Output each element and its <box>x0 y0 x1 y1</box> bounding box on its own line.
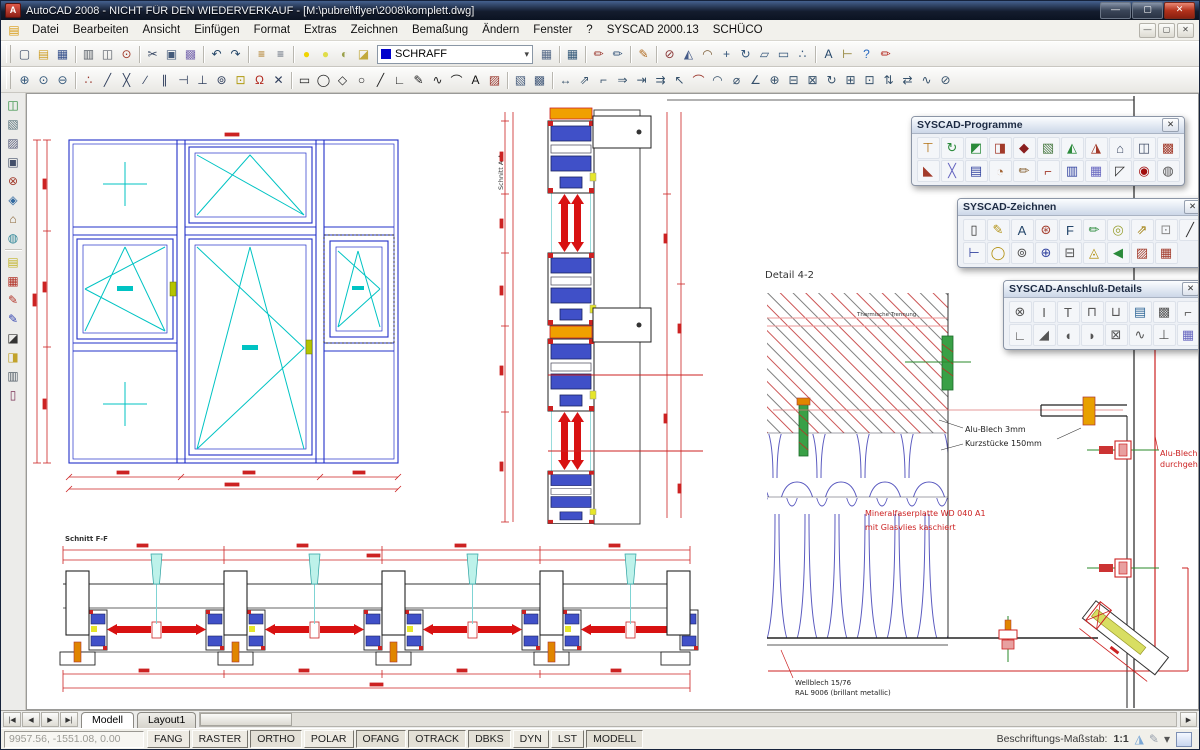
properties-tools: ▦▦✏✏✎⊘◭◠+↻▱▭∴A⊢?✏ <box>537 45 895 64</box>
menu--ndern[interactable]: Ändern <box>475 23 526 37</box>
alu-kurz-label-2: Kurzstücke 150mm <box>965 439 1042 448</box>
acad-file-icon: ▤ <box>6 23 22 38</box>
id-yellow-icon[interactable]: ◨ <box>4 347 23 366</box>
toolbar-grip[interactable] <box>6 71 11 89</box>
door-tool-icon[interactable]: ▯ <box>4 385 23 404</box>
schueco-emblem-icon[interactable]: ◆ <box>1013 137 1036 159</box>
palette-title: SYSCAD-Anschluß-Details <box>1009 283 1142 295</box>
block-reference-icon[interactable]: ▣ <box>4 152 23 171</box>
snap-magnet-icon[interactable]: Ω <box>250 71 269 90</box>
corner-profile-icon[interactable]: ⌐ <box>1177 301 1200 323</box>
views-tool-icon[interactable]: ◈ <box>4 190 23 209</box>
snap-midpoint-icon[interactable]: ∕ <box>136 71 155 90</box>
dot-box-icon[interactable]: ⊡ <box>1155 219 1178 241</box>
edit-pencil-icon[interactable]: ✎ <box>634 45 653 64</box>
target-red-icon[interactable]: ◉ <box>1133 160 1156 182</box>
snap-intersection-icon[interactable]: ╳ <box>117 71 136 90</box>
toggle-dbks[interactable]: DBKS <box>468 730 511 748</box>
toolbar-separator <box>552 72 553 89</box>
hatch-box-icon[interactable]: ▩ <box>1153 301 1176 323</box>
toolbar-separator <box>559 46 560 63</box>
menu-items: DateiBearbeitenAnsichtEinfügenFormatExtr… <box>25 23 770 37</box>
toggle-ofang[interactable]: OFANG <box>356 730 407 748</box>
window-title: AutoCAD 2008 - NICHT FÜR DEN WIEDERVERKA… <box>26 5 474 17</box>
scrollbar-thumb[interactable] <box>200 713 292 726</box>
new-file-icon[interactable]: ▢ <box>15 45 34 64</box>
menu-einf-gen[interactable]: Einfügen <box>187 23 246 37</box>
mineral-label-1: Mineralfaserplatte WD 040 A1 <box>865 509 986 518</box>
dim-leader-icon[interactable]: ↖ <box>670 71 689 90</box>
dim-text-edit-icon[interactable]: ⊠ <box>803 71 822 90</box>
standard-toolbar: ▢▤▦▥◫⊙✂▣▩↶↷≡≡●●◐◪ SCHRAFF ▾ ▦▦✏✏✎⊘◭◠+↻▱▭… <box>1 41 1199 67</box>
palette-title-bar[interactable]: SYSCAD-Zeichnen ✕ <box>958 199 1199 216</box>
thermal-label: Thermische Trennung <box>856 312 916 318</box>
menu--[interactable]: ? <box>579 23 599 37</box>
status-toggles: FANGRASTERORTHOPOLAROFANGOTRACKDBKSDYNLS… <box>147 730 643 748</box>
syscad-logo-icon[interactable]: ◫ <box>4 95 23 114</box>
wipeout-icon[interactable]: ▧ <box>511 71 530 90</box>
z-profile-icon[interactable]: ∟ <box>1009 324 1032 346</box>
mineral-label-2: mit Glasvlies kaschiert <box>865 523 956 532</box>
snap-perpendicular-icon[interactable]: ⊥ <box>193 71 212 90</box>
f-pencil-icon[interactable]: F <box>1059 219 1082 241</box>
layer-plot-icon[interactable]: ◪ <box>354 45 373 64</box>
house-plan-icon[interactable]: ⌂ <box>1109 137 1132 159</box>
alu-durch-label-2: durchgehend <box>1160 460 1199 469</box>
draw-polygon-icon[interactable]: ◇ <box>333 71 352 90</box>
draw-circle-icon[interactable]: ◯ <box>314 71 333 90</box>
draw-ellipse-icon[interactable]: ○ <box>352 71 371 90</box>
bolt-symbol <box>1087 441 1159 459</box>
snap-node-icon[interactable]: ⊡ <box>231 71 250 90</box>
book-green-icon[interactable]: ◭ <box>1061 137 1084 159</box>
building-tool-icon[interactable]: ⌂ <box>4 209 23 228</box>
anchor-detail-icon[interactable]: ⊗ <box>1009 301 1032 323</box>
properties-table-icon[interactable]: ▦ <box>563 45 582 64</box>
dim-ordinate-icon[interactable]: ⌐ <box>594 71 613 90</box>
toolbar-separator <box>656 46 657 63</box>
snap-extension-icon[interactable]: ⊣ <box>174 71 193 90</box>
diagonal-bracket <box>1076 599 1169 682</box>
draw-spline-icon[interactable]: ∿ <box>428 71 447 90</box>
layer-dropdown[interactable]: SCHRAFF ▾ <box>377 45 533 64</box>
dim-chain-icon[interactable]: ⊢ <box>963 242 986 264</box>
snap-off-icon[interactable]: ✕ <box>269 71 288 90</box>
toggle-otrack[interactable]: OTRACK <box>408 730 466 748</box>
alu-kurz-label-1: Alu-Blech 3mm <box>965 425 1026 434</box>
draw-hatch-icon[interactable]: ▨ <box>485 71 504 90</box>
toolbar-separator <box>5 249 22 250</box>
syscad-side-toolbar: ◫▧▨▣⊗◈⌂◍▤▦✎✎◪◨▥▯ <box>1 93 26 710</box>
menu-datei[interactable]: Datei <box>25 23 66 37</box>
bolt-t-icon[interactable]: ⊥ <box>1153 324 1176 346</box>
layer-unlock-icon[interactable]: ◐ <box>335 45 354 64</box>
snap-to-icon[interactable]: ∴ <box>793 45 812 64</box>
annotation-scale-value[interactable]: 1:1 <box>1113 733 1128 745</box>
brush-tool-icon[interactable]: ✏ <box>1013 160 1036 182</box>
palette-icons-row: ◣╳▤◔✏⌐▥▦◸◉◍ <box>916 160 1180 182</box>
scale-menu-arrow-icon[interactable]: ▾ <box>1164 732 1170 746</box>
erase-icon[interactable]: ⊘ <box>660 45 679 64</box>
toggle-raster[interactable]: RASTER <box>192 730 249 748</box>
eye-bubble-icon[interactable]: ◎ <box>1107 219 1130 241</box>
draw-pencil-icon[interactable]: ✎ <box>409 71 428 90</box>
annotation-autoscale-icon[interactable]: ✎ <box>1149 732 1159 746</box>
t-profile-icon[interactable]: T <box>1057 301 1080 323</box>
stretch-icon[interactable]: ▭ <box>774 45 793 64</box>
sheet-new-icon[interactable]: ▤ <box>4 252 23 271</box>
menu-fenster[interactable]: Fenster <box>526 23 579 37</box>
toolbar-separator <box>630 46 631 63</box>
table-red-icon[interactable]: ▦ <box>1155 242 1178 264</box>
www-panel-icon[interactable]: ▦ <box>1177 324 1200 346</box>
cd-tool-icon[interactable]: ◍ <box>1157 160 1180 182</box>
toolbar-separator <box>75 72 76 89</box>
i-beam-icon[interactable]: I <box>1033 301 1056 323</box>
flat-seal-icon[interactable]: ◢ <box>1033 324 1056 346</box>
snap-endpoint-icon[interactable]: ╱ <box>98 71 117 90</box>
truck-tool-icon[interactable]: ▥ <box>1061 160 1084 182</box>
toolbar-separator <box>815 46 816 63</box>
panel-blue-icon[interactable]: ▤ <box>1129 301 1152 323</box>
offset-icon[interactable]: ◠ <box>698 45 717 64</box>
palette-icons-row: ∟◢◖◗⊠∿⊥▦ <box>1008 324 1199 346</box>
alu-durch-label-1: Alu-Blech <box>1160 449 1197 458</box>
profile-blue-icon[interactable]: ◫ <box>1133 137 1156 159</box>
palette-icons-row: ⊗IT⊓⊔▤▩⌐ <box>1008 301 1199 323</box>
toggle-modell[interactable]: MODELL <box>586 730 643 748</box>
toolbar-separator <box>139 46 140 63</box>
close-icon[interactable]: ✕ <box>1182 282 1199 296</box>
toggle-fang[interactable]: FANG <box>147 730 190 748</box>
layer-thaw-icon[interactable]: ● <box>316 45 335 64</box>
x-box-icon[interactable]: ⊠ <box>1105 324 1128 346</box>
menu-bema-ung[interactable]: Bemaßung <box>405 23 475 37</box>
menu-sch-co[interactable]: SCHÜCO <box>706 23 770 37</box>
pipe-tool-icon[interactable]: ⌐ <box>1037 160 1060 182</box>
prev-tab-icon[interactable]: ◀ <box>22 712 40 727</box>
wellblech-label-1: Wellblech 15/76 <box>795 679 852 687</box>
grid-red-icon[interactable]: ▦ <box>4 271 23 290</box>
drawing-canvas[interactable]: Schnitt A-A <box>26 93 1199 710</box>
palette-title-bar[interactable]: SYSCAD-Programme ✕ <box>912 117 1184 134</box>
toolbar-separator <box>293 46 294 63</box>
dim-quick-icon[interactable]: ⇉ <box>651 71 670 90</box>
draw-arc-icon[interactable]: ⌒ <box>447 71 466 90</box>
flag-select-icon[interactable]: ◀ <box>1107 242 1130 264</box>
draw-polyline-icon[interactable]: ∟ <box>390 71 409 90</box>
oval-tool-icon[interactable]: ◯ <box>987 242 1010 264</box>
toolbar-separator <box>507 72 508 89</box>
wellblech-label-2: RAL 9006 (brillant metallic) <box>795 689 891 697</box>
palette-syscad-anschluss-details[interactable]: SYSCAD-Anschluß-Details ✕ ⊗IT⊓⊔▤▩⌐ ∟◢◖◗⊠… <box>1003 280 1199 350</box>
save-file-icon[interactable]: ▦ <box>53 45 72 64</box>
help-icon[interactable]: ? <box>857 45 876 64</box>
profile-green-icon[interactable]: ◩ <box>965 137 988 159</box>
percent-tool-icon[interactable]: ◔ <box>989 160 1012 182</box>
dim-update-icon[interactable]: ↻ <box>822 71 841 90</box>
user-cross-icon[interactable]: ╳ <box>941 160 964 182</box>
u-profile-icon[interactable]: ⊔ <box>1105 301 1128 323</box>
rings-tool-icon[interactable]: ⊚ <box>1011 242 1034 264</box>
image-frame-icon[interactable]: ▩ <box>530 71 549 90</box>
layer-previous-icon[interactable]: ≡ <box>252 45 271 64</box>
target-move-icon[interactable]: ⊕ <box>1035 242 1058 264</box>
palette-icons-row: ▯✎A⊛F✏◎⇗⊡╱ <box>962 219 1199 241</box>
list-blue-icon[interactable]: ▤ <box>965 160 988 182</box>
pen-red-icon[interactable]: ✎ <box>4 290 23 309</box>
window-controls: —▢✕ <box>1100 2 1195 19</box>
toolbar-separator <box>585 46 586 63</box>
palette-title: SYSCAD-Programme <box>917 119 1023 131</box>
layer-states-icon[interactable]: ▦ <box>537 45 556 64</box>
match-properties-icon[interactable]: ✏ <box>589 45 608 64</box>
erase-tool-icon[interactable]: ⊗ <box>4 171 23 190</box>
gasket-left-icon[interactable]: ◖ <box>1057 324 1080 346</box>
dim-radius-icon[interactable]: ◠ <box>708 71 727 90</box>
next-tab-icon[interactable]: ▶ <box>41 712 59 727</box>
draw-text-icon[interactable]: A <box>466 71 485 90</box>
snap-parallel-icon[interactable]: ∥ <box>155 71 174 90</box>
menu-format[interactable]: Format <box>247 23 297 37</box>
channel-profile-icon[interactable]: ⊓ <box>1081 301 1104 323</box>
palette-syscad-programme[interactable]: SYSCAD-Programme ✕ ⊤↻◩◨◆▧◭◮⌂◫▩ ◣╳▤◔✏⌐▥▦◸… <box>911 116 1185 186</box>
draw-rectangle-icon[interactable]: ▭ <box>295 71 314 90</box>
rotate-icon[interactable]: ↻ <box>736 45 755 64</box>
palette-icons-row: ⊢◯⊚⊕⊟◬◀▨▦ <box>962 242 1199 264</box>
layer-on-icon[interactable]: ● <box>297 45 316 64</box>
plot-preview-icon[interactable]: ◫ <box>98 45 117 64</box>
menu-extras[interactable]: Extras <box>297 23 344 37</box>
dim-diameter-icon[interactable]: ⌀ <box>727 71 746 90</box>
dim-continue-icon[interactable]: ⇥ <box>632 71 651 90</box>
cabinet-tool-icon[interactable]: ▦ <box>1085 160 1108 182</box>
toggle-ortho[interactable]: ORTHO <box>250 730 302 748</box>
close-icon[interactable]: ✕ <box>1162 118 1179 132</box>
chevron-down-icon: ▾ <box>524 49 529 60</box>
snap-refpoint-icon[interactable]: ∴ <box>79 71 98 90</box>
scale-icon[interactable]: ▱ <box>755 45 774 64</box>
menu-zeichnen[interactable]: Zeichnen <box>344 23 405 37</box>
wedge-red-icon[interactable]: ◣ <box>917 160 940 182</box>
first-tab-icon[interactable]: |◀ <box>3 712 21 727</box>
document-window-controls: —▢✕ <box>1139 23 1197 38</box>
open-file-icon[interactable]: ▤ <box>34 45 53 64</box>
undo-icon[interactable]: ↶ <box>207 45 226 64</box>
detail-view: Detail 4-2 Thermische Trennung <box>765 96 1199 708</box>
zoom-window-icon[interactable]: ⊕ <box>15 71 34 90</box>
dim-center-mark-icon[interactable]: ⊕ <box>765 71 784 90</box>
move-icon[interactable]: + <box>717 45 736 64</box>
tab-modell[interactable]: Modell <box>81 712 134 728</box>
redo-icon[interactable]: ↷ <box>226 45 245 64</box>
sign-pencil-icon[interactable]: ✏ <box>1083 219 1106 241</box>
toolbar-separator <box>75 46 76 63</box>
dim-ruler-icon[interactable]: ⊢ <box>838 45 857 64</box>
pencil-yellow-icon[interactable]: ✎ <box>987 219 1010 241</box>
case-red-icon[interactable]: ◨ <box>989 137 1012 159</box>
status-bar: 9957.56, -1551.08, 0.00 FANGRASTERORTHOP… <box>1 728 1199 749</box>
modify-black-icon[interactable]: ◪ <box>4 328 23 347</box>
application-window: A AutoCAD 2008 - NICHT FÜR DEN WIEDERVER… <box>0 0 1200 750</box>
toggle-polar[interactable]: POLAR <box>304 730 354 748</box>
dim-edit-icon[interactable]: ⊟ <box>784 71 803 90</box>
scroll-right-icon[interactable]: ▶ <box>1180 712 1197 727</box>
runner-red-icon[interactable]: ◮ <box>1085 137 1108 159</box>
zoom-search-icon[interactable]: ⊙ <box>117 45 136 64</box>
palette-title: SYSCAD-Zeichnen <box>963 201 1056 213</box>
annotation-visibility-icon[interactable]: ◮ <box>1135 732 1144 746</box>
pens-blue-icon[interactable]: ✎ <box>4 309 23 328</box>
coordinate-readout[interactable]: 9957.56, -1551.08, 0.00 <box>4 731 144 748</box>
dim-linear-icon[interactable]: ↔ <box>556 71 575 90</box>
dim-break-icon[interactable]: ⇄ <box>898 71 917 90</box>
doc-close-icon[interactable]: ✕ <box>1177 23 1194 38</box>
toggle-lst[interactable]: LST <box>551 730 584 748</box>
sheet-edit-icon[interactable]: ▨ <box>4 133 23 152</box>
list-sheet-icon[interactable]: ▥ <box>4 366 23 385</box>
clean-screen-button[interactable] <box>1176 732 1192 747</box>
main-area: ◫▧▨▣⊗◈⌂◍▤▦✎✎◪◨▥▯ <box>1 93 1199 710</box>
dim-arc-icon[interactable]: ⌒ <box>689 71 708 90</box>
annotation-scale-label: Beschriftungs-Maßstab: <box>997 733 1108 745</box>
toolbar-separator <box>291 72 292 89</box>
dim-inspect-icon[interactable]: ⊘ <box>936 71 955 90</box>
dim-angular-icon[interactable]: ∠ <box>746 71 765 90</box>
flag-corner-icon[interactable]: ◸ <box>1109 160 1132 182</box>
palette-syscad-zeichnen[interactable]: SYSCAD-Zeichnen ✕ ▯✎A⊛F✏◎⇗⊡╱ ⊢◯⊚⊕⊟◬◀▨▦ <box>957 198 1199 268</box>
menu-syscad-2000-13[interactable]: SYSCAD 2000.13 <box>600 23 706 37</box>
zoom-previous-icon[interactable]: ⊖ <box>53 71 72 90</box>
autocad-logo-icon: A <box>5 3 21 18</box>
sheet-zoom-icon[interactable]: ▧ <box>4 114 23 133</box>
section-f-label: Schnitt F-F <box>65 535 108 543</box>
jx-move-icon[interactable]: ⇗ <box>1131 219 1154 241</box>
panel-red-icon[interactable]: ▩ <box>1157 137 1180 159</box>
tab-layout1[interactable]: Layout1 <box>137 712 196 728</box>
palette-title-bar[interactable]: SYSCAD-Anschluß-Details ✕ <box>1004 281 1199 298</box>
bolt-symbol <box>1087 559 1159 577</box>
doc-restore-icon[interactable]: ▢ <box>1158 23 1175 38</box>
cut-icon[interactable]: ✂ <box>143 45 162 64</box>
horizontal-scrollbar[interactable] <box>199 712 1177 727</box>
detail-title: Detail 4-2 <box>765 270 814 281</box>
close-icon[interactable]: ✕ <box>1184 200 1199 214</box>
menu-bearbeiten[interactable]: Bearbeiten <box>66 23 136 37</box>
hatch-red-icon[interactable]: ▨ <box>1131 242 1154 264</box>
layer-manager-icon[interactable]: ≡ <box>271 45 290 64</box>
draw-dimension-toolbar: ⊕⊙⊖∴╱╳∕∥⊣⊥⊚⊡Ω✕▭◯◇○╱∟✎∿⌒A▨▧▩↔⇗⌐⇒⇥⇉↖⌒◠⌀∠⊕⊟… <box>1 67 1199 93</box>
bottom-bolt-symbol <box>999 616 1017 662</box>
mirror-icon[interactable]: ◭ <box>679 45 698 64</box>
toolbar-grip[interactable] <box>6 45 11 63</box>
spring-detail-icon[interactable]: ∿ <box>1129 324 1152 346</box>
text-a-icon[interactable]: A <box>1011 219 1034 241</box>
toolbar-separator <box>203 46 204 63</box>
gasket-right-icon[interactable]: ◗ <box>1081 324 1104 346</box>
title-bar: A AutoCAD 2008 - NICHT FÜR DEN WIEDERVER… <box>1 1 1199 20</box>
text-edit-icon[interactable]: A <box>819 45 838 64</box>
maximize-icon[interactable]: ▢ <box>1132 2 1163 19</box>
menu-ansicht[interactable]: Ansicht <box>135 23 187 37</box>
zoom-object-icon[interactable]: ⊙ <box>34 71 53 90</box>
horizontal-section-view: Schnitt F-F <box>60 535 698 692</box>
elevation-view <box>33 133 401 492</box>
print-icon[interactable]: ▥ <box>79 45 98 64</box>
copy-icon[interactable]: ▣ <box>162 45 181 64</box>
snap-center-icon[interactable]: ⊚ <box>212 71 231 90</box>
minimize-icon[interactable]: — <box>1100 2 1131 19</box>
numbers-tool-icon[interactable]: ⊟ <box>1059 242 1082 264</box>
refresh-db-icon[interactable]: ↻ <box>941 137 964 159</box>
dim-style-icon[interactable]: ⊡ <box>860 71 879 90</box>
dim-aligned-icon[interactable]: ⇗ <box>575 71 594 90</box>
sketch-brush-icon[interactable]: ✏ <box>876 45 895 64</box>
toggle-dyn[interactable]: DYN <box>513 730 549 748</box>
menu-bar: ▤ DateiBearbeitenAnsichtEinfügenFormatEx… <box>1 20 1199 41</box>
diagonal-line-icon[interactable]: ╱ <box>1179 219 1200 241</box>
draw-dimension-tools: ⊕⊙⊖∴╱╳∕∥⊣⊥⊚⊡Ω✕▭◯◇○╱∟✎∿⌒A▨▧▩↔⇗⌐⇒⇥⇉↖⌒◠⌀∠⊕⊟… <box>15 71 955 90</box>
paste-icon[interactable]: ▩ <box>181 45 200 64</box>
layer-color-swatch <box>381 49 391 59</box>
mast-tool-icon[interactable]: ⊤ <box>917 137 940 159</box>
image-green-icon[interactable]: ▧ <box>1037 137 1060 159</box>
layer-dropdown-value: SCHRAFF <box>395 48 447 60</box>
close-icon[interactable]: ✕ <box>1164 2 1195 19</box>
sb-tool-icon[interactable]: ⊛ <box>1035 219 1058 241</box>
dim-space-icon[interactable]: ⇅ <box>879 71 898 90</box>
tab-navigation: |◀◀▶▶| <box>3 712 78 727</box>
standard-tools: ▢▤▦▥◫⊙✂▣▩↶↷≡≡●●◐◪ <box>15 45 373 64</box>
cone-warning-icon[interactable]: ◬ <box>1083 242 1106 264</box>
last-tab-icon[interactable]: ▶| <box>60 712 78 727</box>
palette-icons-row: ⊤↻◩◨◆▧◭◮⌂◫▩ <box>916 137 1180 159</box>
match-layer-icon[interactable]: ✏ <box>608 45 627 64</box>
cad-drawing: Schnitt A-A <box>27 94 1199 710</box>
block-editor-icon[interactable]: ▯ <box>963 219 986 241</box>
dim-baseline-icon[interactable]: ⇒ <box>613 71 632 90</box>
dim-jog-icon[interactable]: ∿ <box>917 71 936 90</box>
doc-minimize-icon[interactable]: — <box>1139 23 1156 38</box>
annotation-tools: ◮✎▾ <box>1135 732 1170 746</box>
toolbar-separator <box>248 46 249 63</box>
draw-line-icon[interactable]: ╱ <box>371 71 390 90</box>
world-tool-icon[interactable]: ◍ <box>4 228 23 247</box>
layout-tab-row: |◀◀▶▶| Modell Layout1 ▶ <box>1 710 1199 728</box>
dim-tolerance-icon[interactable]: ⊞ <box>841 71 860 90</box>
